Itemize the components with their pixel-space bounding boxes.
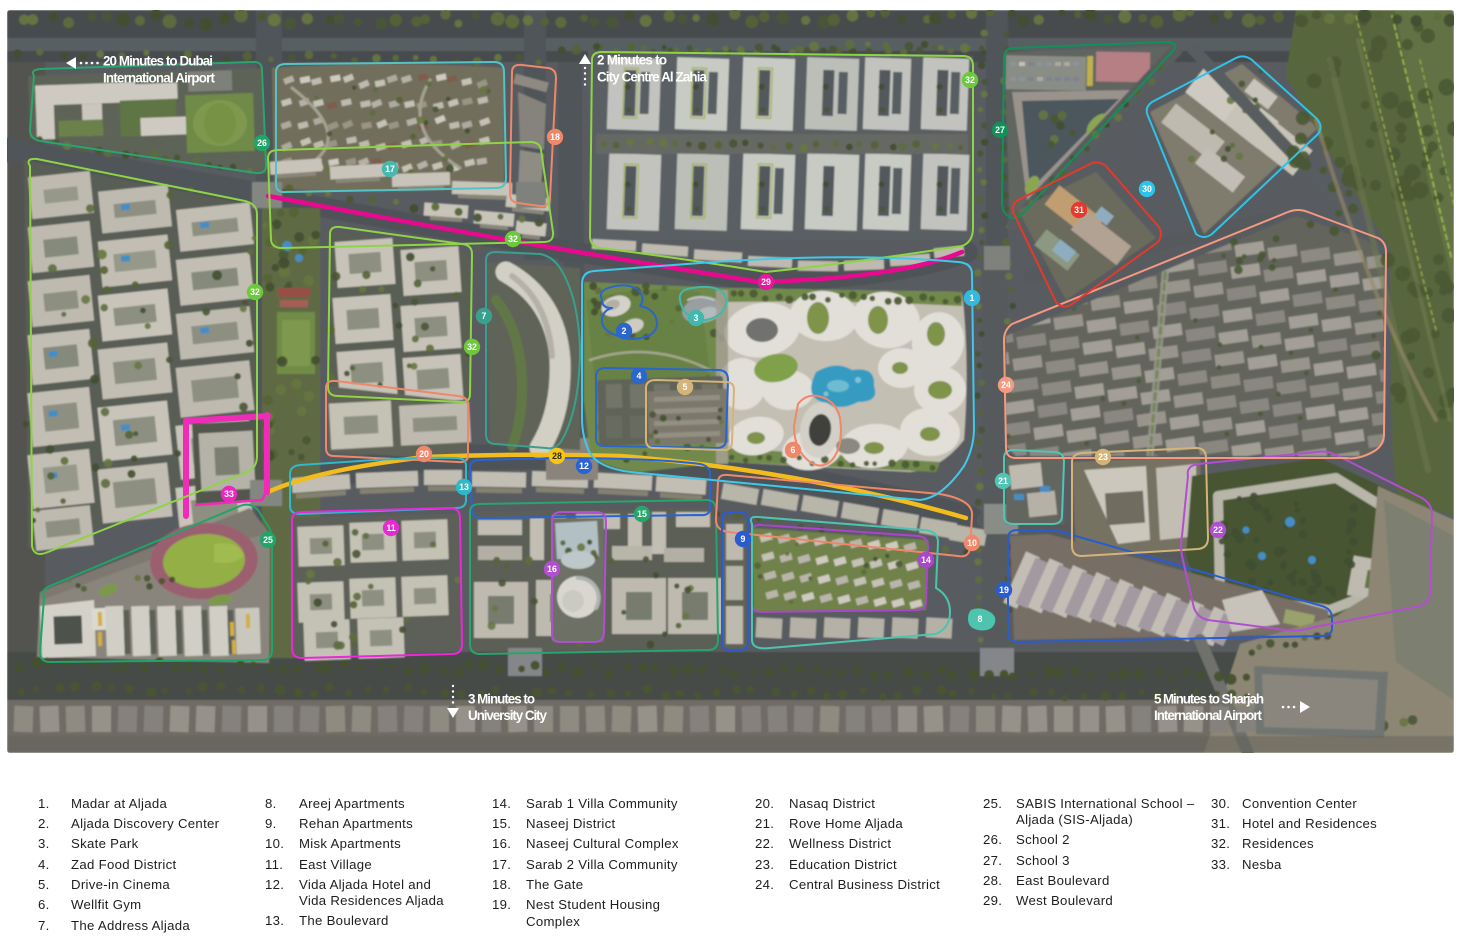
- svg-text:32: 32: [467, 342, 477, 352]
- svg-text:20: 20: [419, 449, 429, 459]
- svg-text:International Airport: International Airport: [103, 71, 216, 86]
- svg-text:11: 11: [386, 523, 395, 533]
- svg-text:2 Minutes to: 2 Minutes to: [597, 53, 667, 68]
- svg-text:12: 12: [579, 461, 589, 471]
- svg-text:3: 3: [694, 313, 699, 323]
- svg-text:26: 26: [257, 138, 267, 148]
- svg-text:32: 32: [508, 234, 518, 244]
- svg-text:19: 19: [999, 585, 1009, 595]
- svg-text:28: 28: [552, 451, 562, 461]
- svg-text:20 Minutes to Dubai: 20 Minutes to Dubai: [103, 54, 213, 69]
- svg-text:13: 13: [459, 482, 469, 492]
- svg-text:32: 32: [250, 287, 260, 297]
- svg-text:16: 16: [547, 564, 557, 574]
- svg-text:25: 25: [263, 535, 273, 545]
- svg-text:7: 7: [482, 311, 487, 321]
- svg-text:30: 30: [1142, 184, 1152, 194]
- svg-text:10: 10: [967, 538, 977, 548]
- svg-text:University City: University City: [468, 708, 548, 723]
- svg-text:5 Minutes to Sharjah: 5 Minutes to Sharjah: [1154, 692, 1264, 707]
- svg-text:4: 4: [637, 371, 642, 381]
- svg-text:33: 33: [224, 489, 234, 499]
- svg-text:31: 31: [1074, 205, 1084, 215]
- svg-text:17: 17: [385, 164, 395, 174]
- svg-text:City Centre Al Zahia: City Centre Al Zahia: [597, 70, 708, 85]
- svg-text:21: 21: [998, 476, 1008, 486]
- svg-text:27: 27: [995, 125, 1005, 135]
- svg-text:9: 9: [741, 534, 746, 544]
- svg-text:International Airport: International Airport: [1154, 708, 1263, 723]
- svg-text:24: 24: [1001, 380, 1011, 390]
- svg-text:29: 29: [761, 277, 771, 287]
- svg-text:22: 22: [1213, 525, 1223, 535]
- svg-text:18: 18: [550, 132, 560, 142]
- svg-text:23: 23: [1098, 452, 1108, 462]
- svg-text:15: 15: [637, 509, 647, 519]
- svg-text:5: 5: [683, 382, 688, 392]
- svg-text:2: 2: [622, 326, 627, 336]
- svg-text:32: 32: [965, 75, 975, 85]
- svg-text:1: 1: [970, 293, 975, 303]
- svg-text:8: 8: [978, 614, 983, 624]
- svg-text:14: 14: [921, 555, 931, 565]
- svg-text:3 Minutes to: 3 Minutes to: [468, 692, 535, 707]
- svg-text:6: 6: [791, 445, 796, 455]
